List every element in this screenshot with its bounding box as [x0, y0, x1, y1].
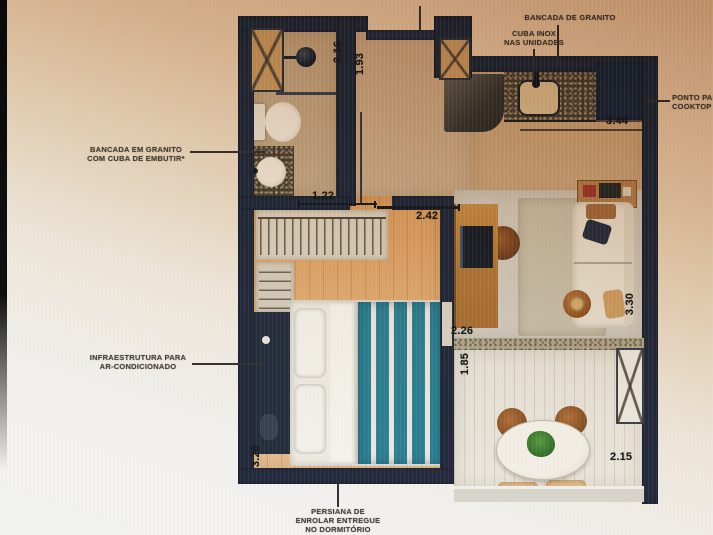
- label-text: ENROLAR ENTREGUE: [286, 516, 390, 525]
- dimline-1-22: [299, 203, 377, 205]
- dim-hall-depth: 1.93: [354, 48, 366, 80]
- label-fechadura-digital: FECHADURA DIGITAL: [329, 0, 499, 1]
- laptop: [460, 226, 493, 268]
- label-cuba-inox: CUBA INOX NAS UNIDADES: [478, 29, 590, 47]
- left-bezel: [0, 0, 7, 535]
- closet-shelf-lines: [259, 265, 291, 309]
- sofa-throw: [586, 204, 616, 219]
- vent-shaft-entry: [439, 38, 471, 80]
- dim-bedroom-depth: 3.20: [250, 440, 262, 472]
- bed-blanket: [358, 302, 442, 464]
- floorplan-photo: 2.16 1.93 1.22 2.42 3.44 2.26 1.85 3.30 …: [0, 0, 713, 535]
- dim-tick-3: [458, 204, 460, 211]
- dimline-3-44: [520, 129, 642, 131]
- wall-right: [642, 56, 658, 504]
- toilet-bowl: [265, 102, 301, 142]
- dimline-1-93: [360, 112, 362, 204]
- label-bancada-de-granito: BANCADA DE GRANITO: [500, 13, 640, 22]
- label-text: AR-CONDICIONADO: [82, 362, 194, 371]
- wall-bedroom-bottom: [238, 468, 454, 484]
- bedroom-window: [442, 302, 452, 346]
- sofa-pillow-tan: [602, 289, 626, 320]
- shower-head-icon: [296, 47, 316, 67]
- balcony-railing: [454, 486, 644, 502]
- toilet-tank: [253, 104, 265, 140]
- bedside-decor-blob: [260, 414, 278, 440]
- dimline-2-42: [377, 206, 460, 209]
- label-text: BANCADA EM GRANITO: [80, 145, 192, 154]
- shower-screen: [276, 92, 338, 95]
- label-ponto-cooktop: PONTO PARA COOKTOP: [672, 93, 713, 111]
- label-text: NO DORMITÓRIO: [286, 525, 390, 534]
- pouf-tray: [570, 297, 584, 311]
- entrance-door: [366, 30, 436, 40]
- bed-pillow-top: [294, 308, 326, 378]
- tv-bench-item-light: [623, 187, 631, 196]
- dim-living-depth: 3.30: [624, 288, 636, 320]
- dim-kitchen-width: 3.44: [606, 115, 628, 127]
- label-text: BANCADA DE GRANITO: [500, 13, 640, 22]
- dim-living-width: 2.26: [451, 325, 473, 337]
- label-text: PONTO PARA: [672, 93, 713, 102]
- leader-bancada-embutir: [190, 151, 266, 153]
- label-text: CUBA INOX: [478, 29, 590, 38]
- tv-bench-item-red: [583, 185, 596, 197]
- label-text: PERSIANA DE: [286, 507, 390, 516]
- dim-balcony-width: 2.15: [610, 451, 632, 463]
- tv-bench-item-dark: [599, 183, 621, 198]
- dim-balcony-depth: 1.85: [459, 348, 471, 380]
- leader-infra-ar: [192, 363, 264, 365]
- balcony-plant: [527, 431, 555, 457]
- dim-bedroom-width-top: 2.42: [416, 210, 438, 222]
- closet-hanger-hooks: [260, 219, 384, 255]
- dim-tick-1: [298, 200, 300, 207]
- label-text: FECHADURA DIGITAL: [329, 0, 499, 1]
- dim-bath-depth: 2.16: [332, 36, 344, 68]
- kitchen-cabinet: [444, 74, 504, 132]
- label-persiana: PERSIANA DE ENROLAR ENTREGUE NO DORMITÓR…: [286, 507, 390, 534]
- leader-ponto-cooktop: [645, 100, 670, 102]
- label-text: COM CUBA DE EMBUTIR*: [80, 154, 192, 163]
- label-bancada-embutir: BANCADA EM GRANITO COM CUBA DE EMBUTIR*: [80, 145, 192, 163]
- label-text: INFRAESTRUTURA PARA: [82, 353, 194, 362]
- leader-cuba-inox: [533, 49, 535, 76]
- dim-bath-width: 1.22: [312, 190, 334, 202]
- cooktop-counter: [596, 62, 642, 120]
- bed-sheet: [330, 302, 358, 464]
- label-infra-ar: INFRAESTRUTURA PARA AR-CONDICIONADO: [82, 353, 194, 371]
- bed-pillow-bottom: [294, 384, 326, 454]
- leader-persiana: [337, 481, 339, 507]
- vent-shaft-bathroom: [250, 28, 284, 92]
- label-text: NAS UNIDADES: [478, 38, 590, 47]
- bathroom-sink: [256, 157, 286, 187]
- dim-tick-2: [374, 201, 376, 208]
- vent-shaft-balcony: [616, 348, 644, 424]
- bedside-decor-sphere: [262, 336, 270, 344]
- leader-fechadura: [419, 6, 421, 32]
- sofa-divider: [574, 262, 632, 264]
- kitchen-faucet-head: [532, 80, 540, 88]
- label-text: COOKTOP: [672, 102, 713, 111]
